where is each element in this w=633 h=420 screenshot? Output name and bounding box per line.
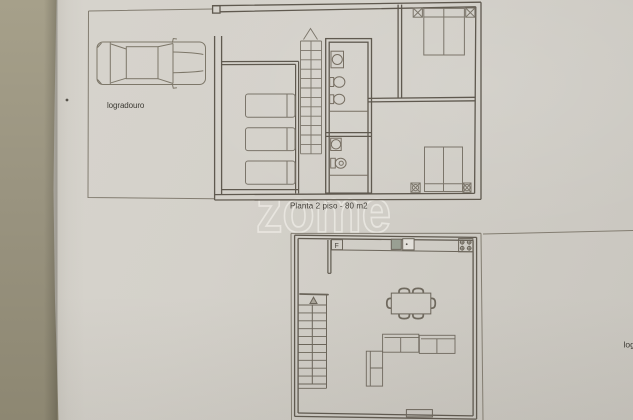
svg-text:logradouro: logradouro [624,340,633,350]
svg-text:Planta 2 piso - 80 m2: Planta 2 piso - 80 m2 [290,202,368,211]
svg-text:logradouro: logradouro [107,101,145,110]
svg-text:F: F [335,243,339,250]
